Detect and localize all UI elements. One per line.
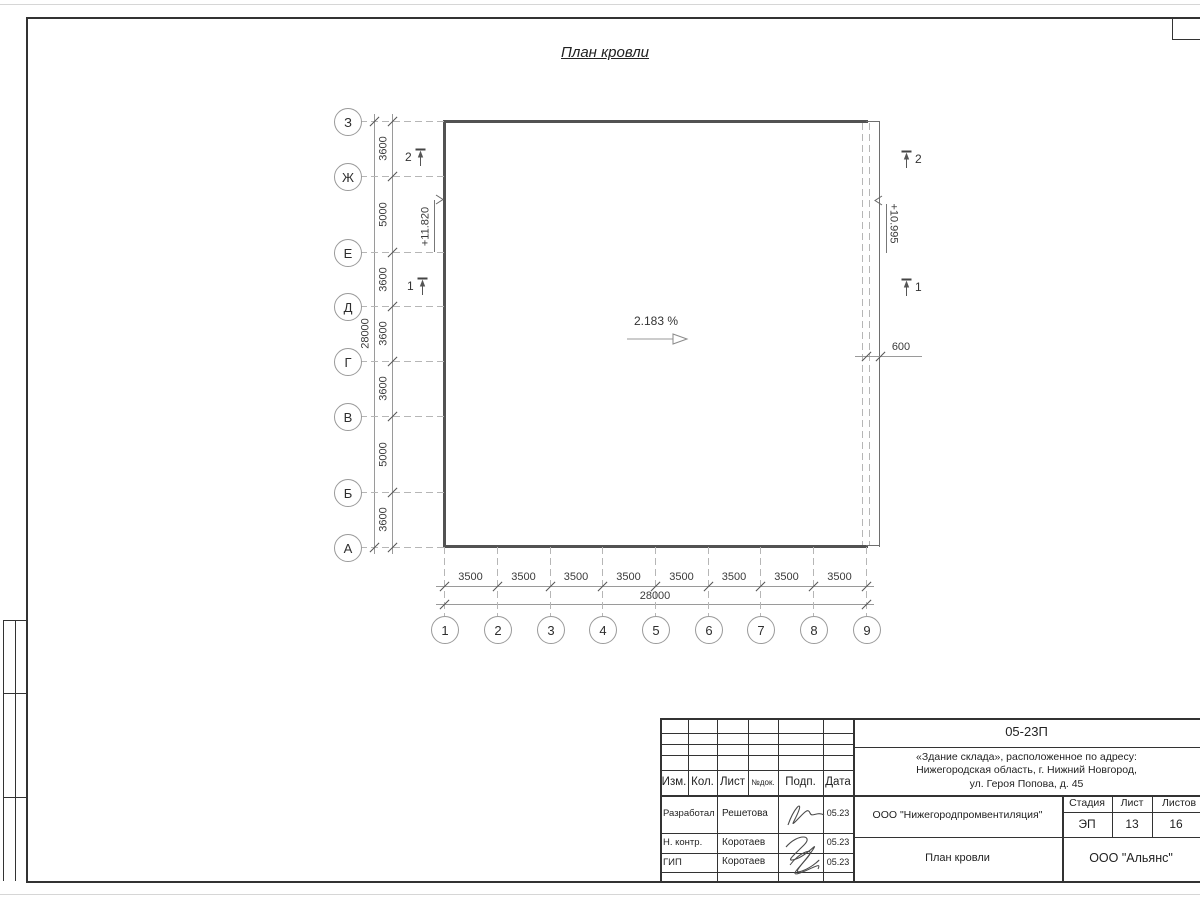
sheets-value-cell: 16 [1152, 812, 1200, 837]
dimension-label: 5000 [378, 182, 391, 246]
drawing-title-cell: План кровли [853, 837, 1062, 881]
axis-row-line [360, 252, 444, 253]
header-podp: Подп. [778, 770, 823, 795]
signature-scribble [776, 831, 828, 879]
axis-row-line [360, 306, 444, 307]
axis-bubble: Е [334, 239, 362, 267]
axis-bubble: 2 [484, 616, 512, 644]
drawing-sheet: План кровли 600 2.183 % +11.820 +10.995 … [0, 0, 1200, 900]
header-data: Дата [823, 770, 853, 795]
header-list: Лист [717, 770, 748, 795]
axis-bubble: Д [334, 293, 362, 321]
axis-bubble: 3 [537, 616, 565, 644]
signer-role: Н. контр. [660, 833, 717, 853]
dimension-label: 3500 [603, 571, 655, 583]
dimension-label-total: 28000 [629, 590, 681, 602]
sheets-label-cell: Листов [1152, 795, 1200, 812]
table-line-h [660, 744, 853, 745]
axis-row-line [360, 361, 444, 362]
sheet-value-cell: 13 [1112, 812, 1152, 837]
dimension-label: 5000 [378, 422, 391, 486]
axis-bubble: 5 [642, 616, 670, 644]
axis-bubble: Г [334, 348, 362, 376]
sheet-label-cell: Лист [1112, 795, 1152, 812]
axis-bubble: Б [334, 479, 362, 507]
doc-number-cell: 05-23П [853, 718, 1200, 747]
dimension-label: 3500 [550, 571, 602, 583]
project-address-line: «Здание склада», расположенное по адресу… [916, 751, 1137, 764]
dimension-label: 3500 [708, 571, 760, 583]
stage-label-cell: Стадия [1062, 795, 1112, 812]
project-address-line: ул. Героя Попова, д. 45 [970, 778, 1084, 791]
project-address-cell: «Здание склада», расположенное по адресу… [853, 747, 1200, 795]
dim-tick [861, 351, 871, 361]
axis-bubble: А [334, 534, 362, 562]
axis-row-line [360, 492, 444, 493]
axis-bubble: 4 [589, 616, 617, 644]
company-cell: ООО "Альянс" [1062, 837, 1200, 881]
signer-name: Коротаев [717, 853, 778, 872]
axis-bubble: 9 [853, 616, 881, 644]
axis-bubble: 1 [431, 616, 459, 644]
header-ndok: №док. [748, 770, 778, 795]
header-kol: Кол. [688, 770, 717, 795]
signature-scribble [781, 798, 827, 832]
org-cell: ООО "Нижегородпромвентиляция" [853, 795, 1062, 837]
axis-row-line [360, 416, 444, 417]
dimension-label: 3500 [498, 571, 550, 583]
signer-role: Разработал [660, 795, 717, 833]
table-line-h [660, 755, 853, 756]
dimension-label: 3500 [445, 571, 497, 583]
dimension-label: 3500 [814, 571, 866, 583]
stage-value-cell: ЭП [1062, 812, 1112, 837]
axis-bubble: В [334, 403, 362, 431]
signer-name: Коротаев [717, 833, 778, 853]
signer-name: Решетова [717, 795, 778, 833]
axis-bubble: 8 [800, 616, 828, 644]
dimension-label: 3500 [656, 571, 708, 583]
axis-bubble: 6 [695, 616, 723, 644]
dimension-label-total: 28000 [360, 302, 373, 366]
dimension-label: 3500 [761, 571, 813, 583]
project-address-line: Нижегородская область, г. Нижний Новгоро… [916, 764, 1137, 777]
signer-date: 05.23 [823, 795, 853, 833]
header-izm: Изм. [660, 770, 688, 795]
signer-role: ГИП [660, 853, 717, 872]
axis-bubble: З [334, 108, 362, 136]
axis-row-line [360, 176, 444, 177]
table-line-h [660, 733, 853, 734]
dim-tick [875, 351, 885, 361]
axis-bubble: 7 [747, 616, 775, 644]
axis-bubble: Ж [334, 163, 362, 191]
